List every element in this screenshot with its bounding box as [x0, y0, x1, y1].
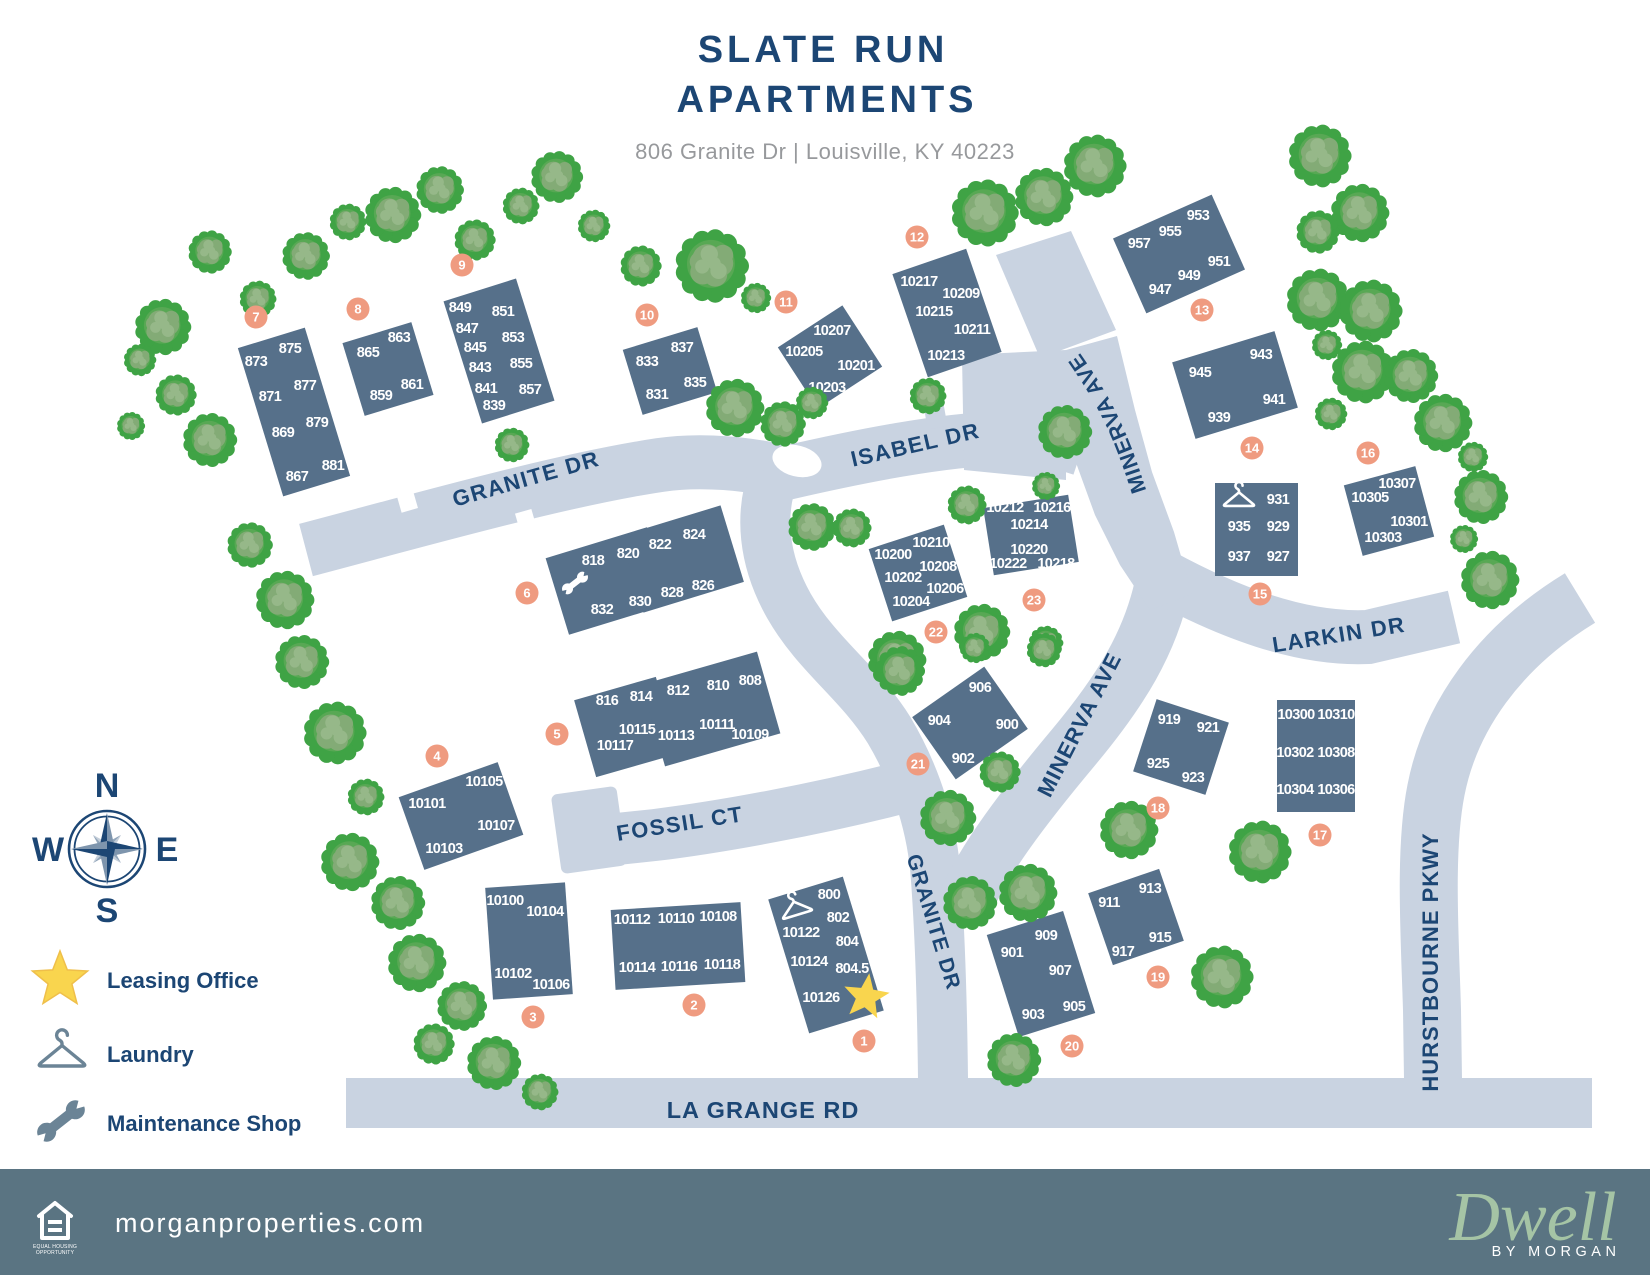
svg-text:935: 935	[1228, 519, 1251, 535]
svg-text:10108: 10108	[699, 909, 737, 925]
svg-text:947: 947	[1149, 282, 1172, 298]
svg-text:830: 830	[629, 594, 652, 610]
svg-text:901: 901	[1001, 945, 1024, 961]
svg-text:902: 902	[952, 751, 975, 767]
svg-text:857: 857	[519, 382, 542, 398]
svg-text:12: 12	[910, 230, 924, 245]
svg-text:951: 951	[1208, 254, 1231, 270]
svg-text:9: 9	[458, 258, 465, 273]
svg-text:10210: 10210	[912, 535, 950, 551]
svg-text:923: 923	[1182, 770, 1205, 786]
svg-text:915: 915	[1149, 930, 1172, 946]
svg-text:10211: 10211	[954, 322, 991, 338]
svg-text:10212: 10212	[986, 500, 1024, 516]
svg-text:861: 861	[401, 377, 424, 393]
svg-text:N: N	[95, 767, 120, 805]
svg-text:839: 839	[483, 398, 506, 414]
svg-text:941: 941	[1263, 392, 1286, 408]
svg-text:10202: 10202	[884, 570, 922, 586]
svg-text:843: 843	[469, 360, 492, 376]
svg-text:822: 822	[649, 537, 672, 553]
svg-text:1: 1	[860, 1034, 867, 1049]
svg-text:10300: 10300	[1277, 707, 1315, 723]
svg-text:10122: 10122	[782, 925, 820, 941]
svg-text:855: 855	[510, 356, 533, 372]
svg-text:953: 953	[1187, 208, 1210, 224]
svg-text:10208: 10208	[919, 559, 957, 575]
svg-text:900: 900	[996, 717, 1019, 733]
svg-text:10102: 10102	[494, 966, 532, 982]
svg-text:820: 820	[617, 546, 640, 562]
svg-text:921: 921	[1197, 720, 1220, 736]
svg-text:881: 881	[322, 458, 345, 474]
svg-text:853: 853	[502, 330, 525, 346]
svg-text:10201: 10201	[837, 358, 875, 374]
svg-text:14: 14	[1245, 441, 1260, 456]
svg-text:10105: 10105	[465, 774, 503, 790]
svg-text:925: 925	[1147, 756, 1170, 772]
svg-text:877: 877	[294, 378, 317, 394]
svg-text:10116: 10116	[661, 959, 698, 975]
svg-text:865: 865	[357, 345, 380, 361]
svg-text:816: 816	[596, 693, 619, 709]
svg-text:937: 937	[1228, 549, 1251, 565]
svg-text:S: S	[96, 892, 119, 930]
svg-text:10124: 10124	[790, 954, 828, 970]
svg-text:927: 927	[1267, 549, 1290, 565]
svg-text:morganproperties.com: morganproperties.com	[115, 1208, 425, 1238]
svg-text:833: 833	[636, 354, 659, 370]
svg-text:11: 11	[779, 295, 793, 310]
svg-text:945: 945	[1189, 365, 1212, 381]
svg-text:4: 4	[433, 749, 441, 764]
svg-text:Laundry: Laundry	[107, 1042, 195, 1067]
svg-text:SLATE RUN: SLATE RUN	[698, 29, 949, 71]
svg-text:5: 5	[553, 727, 560, 742]
svg-text:10110: 10110	[658, 911, 695, 927]
svg-text:10112: 10112	[614, 912, 651, 928]
svg-text:10222: 10222	[989, 556, 1027, 572]
svg-text:863: 863	[388, 330, 411, 346]
svg-text:826: 826	[692, 578, 715, 594]
svg-text:871: 871	[259, 389, 282, 405]
svg-text:875: 875	[279, 341, 302, 357]
svg-text:824: 824	[683, 527, 706, 543]
svg-text:10: 10	[640, 308, 654, 323]
svg-text:10113: 10113	[658, 728, 695, 744]
svg-text:10200: 10200	[874, 547, 912, 563]
svg-text:835: 835	[684, 375, 707, 391]
svg-text:10109: 10109	[731, 727, 769, 743]
svg-text:7: 7	[252, 310, 259, 325]
svg-text:23: 23	[1027, 593, 1041, 608]
svg-text:10302: 10302	[1276, 745, 1314, 761]
svg-text:10310: 10310	[1317, 707, 1355, 723]
svg-text:911: 911	[1098, 895, 1120, 911]
svg-text:10303: 10303	[1364, 530, 1402, 546]
svg-text:10217: 10217	[900, 274, 938, 290]
svg-text:804.5: 804.5	[835, 961, 869, 977]
svg-text:867: 867	[286, 469, 309, 485]
svg-text:10104: 10104	[526, 904, 564, 920]
svg-text:949: 949	[1178, 268, 1201, 284]
svg-text:10304: 10304	[1276, 782, 1314, 798]
svg-text:909: 909	[1035, 928, 1058, 944]
svg-text:955: 955	[1159, 224, 1182, 240]
svg-text:18: 18	[1151, 801, 1165, 816]
svg-text:10213: 10213	[927, 348, 965, 364]
svg-text:814: 814	[630, 689, 653, 705]
svg-text:10306: 10306	[1317, 782, 1355, 798]
svg-text:10301: 10301	[1390, 514, 1428, 530]
svg-text:10126: 10126	[802, 990, 840, 1006]
svg-text:E: E	[156, 831, 179, 869]
svg-text:10215: 10215	[915, 304, 953, 320]
svg-text:906: 906	[969, 680, 992, 696]
svg-text:10214: 10214	[1010, 517, 1048, 533]
svg-text:904: 904	[928, 713, 951, 729]
svg-text:10207: 10207	[813, 323, 851, 339]
svg-text:HURSTBOURNE PKWY: HURSTBOURNE PKWY	[1418, 832, 1443, 1091]
svg-text:10205: 10205	[785, 344, 823, 360]
svg-text:800: 800	[818, 887, 841, 903]
svg-text:929: 929	[1267, 519, 1290, 535]
svg-text:19: 19	[1151, 970, 1165, 985]
svg-text:15: 15	[1253, 587, 1267, 602]
svg-text:841: 841	[475, 381, 498, 397]
svg-text:BY MORGAN: BY MORGAN	[1492, 1244, 1621, 1260]
svg-text:10111: 10111	[699, 717, 735, 733]
svg-text:22: 22	[929, 625, 943, 640]
svg-text:LA GRANGE RD: LA GRANGE RD	[667, 1097, 860, 1123]
svg-text:10204: 10204	[892, 594, 930, 610]
svg-text:Leasing Office: Leasing Office	[107, 968, 259, 993]
svg-text:873: 873	[245, 354, 268, 370]
svg-text:831: 831	[646, 387, 669, 403]
svg-text:859: 859	[370, 388, 393, 404]
svg-text:806 Granite Dr | Louisville, K: 806 Granite Dr | Louisville, KY 40223	[635, 139, 1015, 164]
svg-text:939: 939	[1208, 410, 1231, 426]
svg-text:931: 931	[1267, 492, 1290, 508]
svg-text:21: 21	[911, 757, 925, 772]
svg-text:8: 8	[354, 302, 361, 317]
svg-text:802: 802	[827, 910, 850, 926]
svg-text:16: 16	[1361, 446, 1375, 461]
svg-text:10115: 10115	[619, 722, 656, 738]
svg-text:10308: 10308	[1317, 745, 1355, 761]
svg-text:810: 810	[707, 678, 730, 694]
svg-text:13: 13	[1195, 303, 1209, 318]
svg-text:913: 913	[1139, 881, 1162, 897]
svg-text:OPPORTUNITY: OPPORTUNITY	[36, 1250, 75, 1256]
svg-text:10206: 10206	[926, 581, 964, 597]
svg-text:804: 804	[836, 934, 859, 950]
svg-text:20: 20	[1065, 1039, 1079, 1054]
svg-text:10107: 10107	[477, 818, 515, 834]
svg-text:943: 943	[1250, 347, 1273, 363]
svg-text:879: 879	[306, 415, 329, 431]
svg-text:10305: 10305	[1351, 490, 1389, 506]
svg-text:957: 957	[1128, 236, 1151, 252]
svg-text:10100: 10100	[486, 893, 524, 909]
svg-text:851: 851	[492, 304, 515, 320]
svg-text:837: 837	[671, 340, 694, 356]
svg-text:847: 847	[456, 321, 479, 337]
svg-text:10106: 10106	[532, 977, 570, 993]
svg-text:6: 6	[523, 586, 530, 601]
svg-text:3: 3	[529, 1010, 536, 1025]
svg-text:10209: 10209	[942, 286, 980, 302]
svg-text:818: 818	[582, 553, 605, 569]
svg-text:832: 832	[591, 602, 614, 618]
svg-text:905: 905	[1063, 999, 1086, 1015]
svg-text:2: 2	[690, 998, 697, 1013]
svg-text:907: 907	[1049, 963, 1072, 979]
svg-text:917: 917	[1112, 944, 1135, 960]
svg-text:903: 903	[1022, 1007, 1045, 1023]
svg-text:17: 17	[1313, 828, 1327, 843]
svg-text:919: 919	[1158, 712, 1181, 728]
svg-text:APARTMENTS: APARTMENTS	[676, 79, 977, 121]
svg-text:812: 812	[667, 683, 690, 699]
svg-text:869: 869	[272, 425, 295, 441]
svg-text:849: 849	[449, 300, 472, 316]
svg-text:10117: 10117	[597, 738, 634, 754]
svg-text:10118: 10118	[704, 957, 741, 973]
svg-text:10103: 10103	[425, 841, 463, 857]
svg-text:10101: 10101	[408, 796, 446, 812]
svg-text:808: 808	[739, 673, 762, 689]
svg-text:845: 845	[464, 340, 487, 356]
svg-text:W: W	[32, 831, 65, 869]
svg-text:10114: 10114	[619, 960, 656, 976]
svg-text:10216: 10216	[1033, 500, 1071, 516]
svg-text:828: 828	[661, 585, 684, 601]
svg-text:10218: 10218	[1037, 556, 1075, 572]
svg-text:Maintenance Shop: Maintenance Shop	[107, 1111, 301, 1136]
